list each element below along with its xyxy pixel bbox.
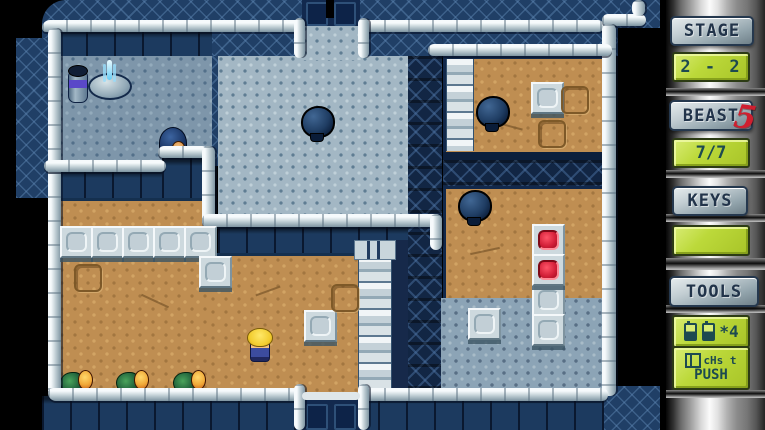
beast (299, 104, 335, 142)
tool-chip-icon (685, 353, 701, 368)
fountain (88, 60, 132, 100)
slot (331, 284, 359, 312)
pipe-ring (666, 88, 765, 96)
keys-label: KEYS (672, 186, 748, 216)
block (531, 82, 564, 114)
block (153, 226, 186, 258)
battery-icon (684, 323, 697, 341)
block (532, 314, 565, 346)
hud-sidebar: STAGE 2 - 2 BEAST 5 7/7 KEYS TOOLS *4 cH… (660, 0, 765, 430)
game-canvas[interactable] (0, 0, 660, 430)
tools-action: PUSH (694, 368, 728, 383)
red-block (532, 224, 565, 256)
pipe-ring (666, 258, 765, 270)
block (184, 226, 217, 258)
tools-inventory: *4 (672, 315, 750, 348)
beast (474, 94, 510, 132)
beast (456, 188, 492, 226)
block (532, 284, 565, 316)
tool-icons-text: cHs t (703, 355, 736, 366)
stage-label: STAGE (670, 16, 754, 46)
block (60, 226, 93, 258)
block (122, 226, 155, 258)
game-screen: STAGE 2 - 2 BEAST 5 7/7 KEYS TOOLS *4 cH… (0, 0, 765, 430)
beast-count: 7/7 (672, 138, 750, 168)
tool-icons-row: cHs t (685, 353, 736, 368)
slot (74, 264, 102, 292)
player (246, 328, 272, 362)
pipe-ring (666, 170, 765, 178)
stage-value: 2 - 2 (672, 52, 750, 82)
barrel (66, 62, 88, 104)
slot (561, 86, 589, 114)
entity-layer-front (0, 0, 660, 430)
red-block (532, 254, 565, 286)
block (199, 256, 232, 288)
block (91, 226, 124, 258)
pipe-ring (666, 390, 765, 398)
tools-action-box: cHs t PUSH (672, 346, 750, 390)
block (304, 310, 337, 342)
block (468, 308, 501, 340)
slot (538, 120, 566, 148)
tools-count: *4 (719, 322, 738, 341)
tools-label: TOOLS (669, 276, 759, 307)
battery-icon (702, 323, 715, 341)
keys-value (672, 225, 750, 256)
